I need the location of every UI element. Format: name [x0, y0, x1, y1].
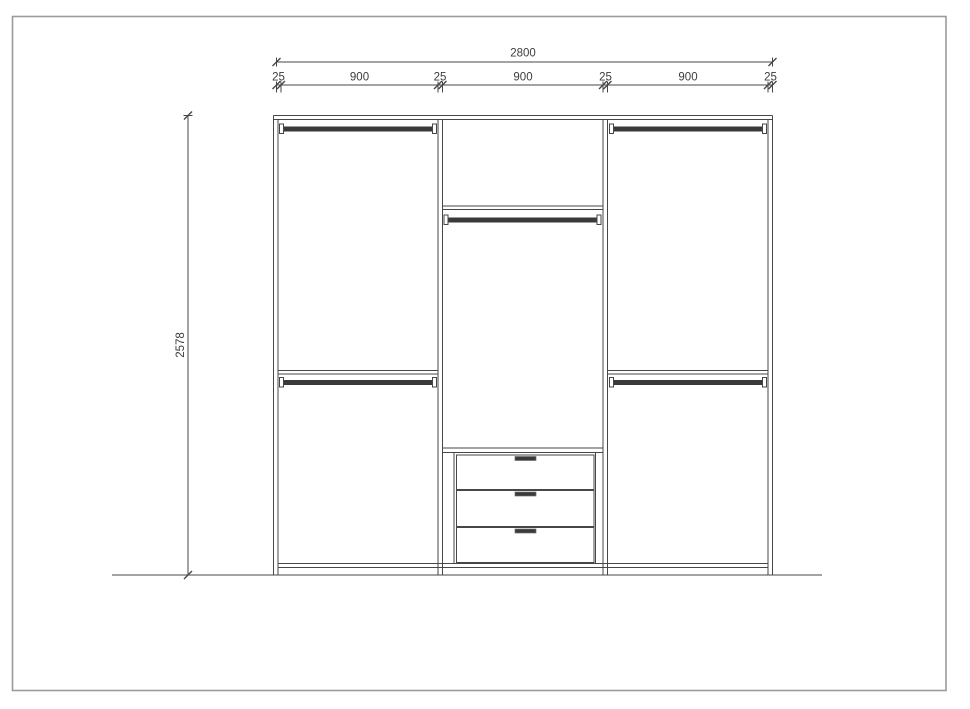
dimension-height: 2578 — [175, 112, 193, 580]
rail-bracket — [597, 215, 601, 225]
rail-bracket — [433, 378, 437, 388]
rail-bracket — [610, 124, 614, 134]
rail-bracket — [280, 378, 284, 388]
drawer-handle — [515, 492, 536, 496]
canvas-border — [13, 17, 947, 691]
dimension-total-width-label: 2800 — [510, 48, 536, 60]
dimension-segment-label: 900 — [350, 72, 369, 84]
hanging-rail-middle — [444, 215, 601, 225]
shelf-right-middle — [608, 371, 768, 375]
dimension-height-label: 2578 — [175, 332, 187, 358]
dimension-width-segments: 25 900 25 900 25 900 25 — [272, 72, 777, 93]
dimension-segment-label: 25 — [434, 72, 447, 84]
drawer-handle — [515, 529, 536, 533]
dimension-segment-label: 900 — [678, 72, 697, 84]
dimension-segment-label: 25 — [764, 72, 777, 84]
shelf-middle-top — [443, 206, 604, 210]
dimension-segment-label: 25 — [272, 72, 285, 84]
shelf-left-middle — [278, 371, 438, 375]
dimension-segment-label: 25 — [599, 72, 612, 84]
rail-bracket — [444, 215, 448, 225]
hanging-rail-left-top — [280, 124, 437, 134]
drawer-handle — [515, 457, 536, 461]
wardrobe-elevation-drawing: 2800 25 900 25 900 25 900 25 2578 — [0, 0, 970, 709]
rail-bracket — [763, 378, 767, 388]
hanging-rail-right-top — [610, 124, 767, 134]
drawer-unit — [443, 448, 604, 564]
rail-bracket — [433, 124, 437, 134]
rail-bracket — [280, 124, 284, 134]
rail-bracket — [763, 124, 767, 134]
hanging-rail-left-middle — [280, 378, 437, 388]
dimension-total-width: 2800 — [273, 48, 777, 67]
hanging-rail-right-middle — [610, 378, 767, 388]
dimension-segment-label: 900 — [513, 72, 532, 84]
rail-bracket — [610, 378, 614, 388]
drawer-unit-top — [443, 448, 604, 453]
